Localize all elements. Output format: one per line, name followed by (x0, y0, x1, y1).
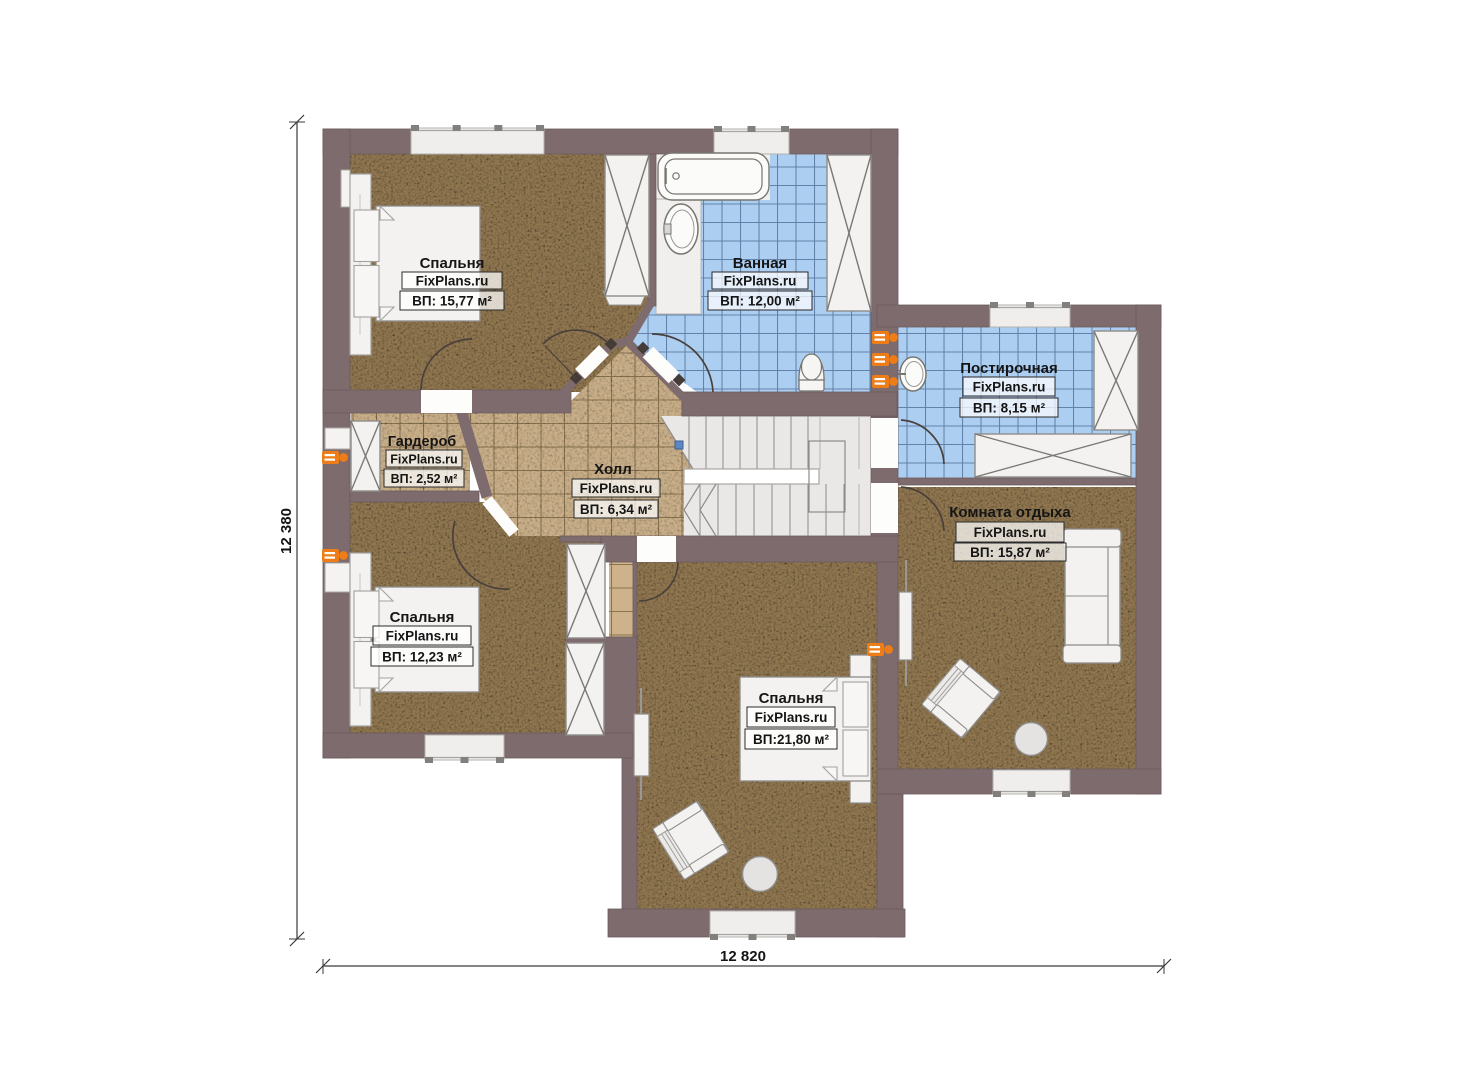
svg-text:ВП:21,80 м²: ВП:21,80 м² (753, 732, 829, 747)
svg-text:FixPlans.ru: FixPlans.ru (416, 274, 489, 289)
svg-text:FixPlans.ru: FixPlans.ru (973, 380, 1046, 395)
svg-text:FixPlans.ru: FixPlans.ru (390, 453, 457, 467)
svg-text:Спальня: Спальня (759, 690, 824, 707)
svg-text:ВП: 12,00 м²: ВП: 12,00 м² (720, 294, 800, 309)
svg-text:ВП: 8,15 м²: ВП: 8,15 м² (973, 401, 1046, 416)
svg-text:FixPlans.ru: FixPlans.ru (724, 274, 797, 289)
svg-text:Гардероб: Гардероб (388, 434, 457, 450)
svg-text:ВП: 2,52 м²: ВП: 2,52 м² (391, 472, 458, 486)
svg-text:ВП: 15,77 м²: ВП: 15,77 м² (412, 294, 492, 309)
svg-text:ВП: 15,87 м²: ВП: 15,87 м² (970, 545, 1050, 560)
svg-text:FixPlans.ru: FixPlans.ru (755, 710, 828, 725)
svg-text:Спальня: Спальня (390, 609, 455, 626)
svg-text:Постирочная: Постирочная (960, 360, 1057, 377)
svg-text:FixPlans.ru: FixPlans.ru (580, 481, 653, 496)
svg-text:FixPlans.ru: FixPlans.ru (974, 525, 1047, 540)
svg-text:12 380: 12 380 (278, 508, 295, 554)
svg-text:Комната отдыха: Комната отдыха (949, 504, 1071, 521)
svg-text:ВП: 6,34 м²: ВП: 6,34 м² (580, 502, 653, 517)
svg-text:Холл: Холл (594, 461, 632, 478)
svg-text:ВП: 12,23 м²: ВП: 12,23 м² (382, 650, 462, 665)
svg-text:Ванная: Ванная (733, 255, 787, 272)
svg-text:FixPlans.ru: FixPlans.ru (386, 629, 459, 644)
svg-text:Спальня: Спальня (420, 255, 485, 272)
svg-text:12 820: 12 820 (720, 948, 766, 965)
